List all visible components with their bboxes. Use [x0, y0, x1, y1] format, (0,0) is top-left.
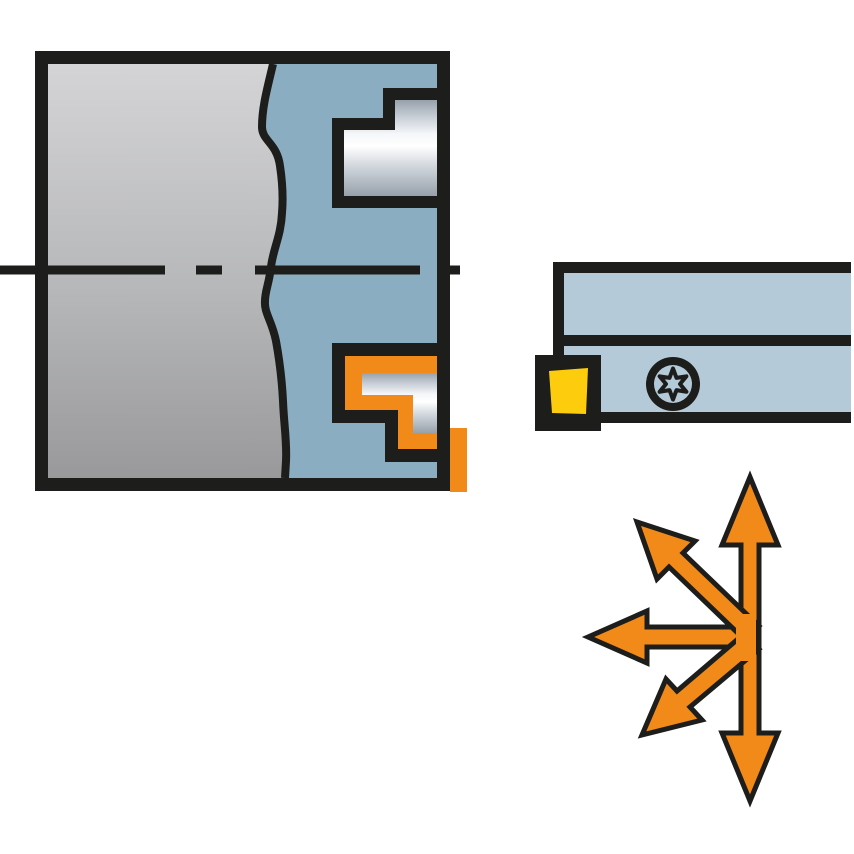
workpiece-figure — [0, 58, 467, 493]
holder-bottom-edge — [586, 412, 851, 423]
direction-arrows — [588, 477, 778, 801]
arrow-hub — [736, 614, 756, 661]
torx-screw — [646, 357, 700, 411]
holder-left-edge — [553, 262, 564, 362]
illustration-svg — [0, 0, 854, 854]
catalog-illustration — [0, 0, 854, 854]
cutting-insert — [549, 368, 588, 414]
holder-divider — [558, 335, 851, 346]
tool-holder — [535, 262, 851, 431]
holder-top-edge — [553, 262, 851, 273]
orange-tab — [450, 428, 467, 492]
